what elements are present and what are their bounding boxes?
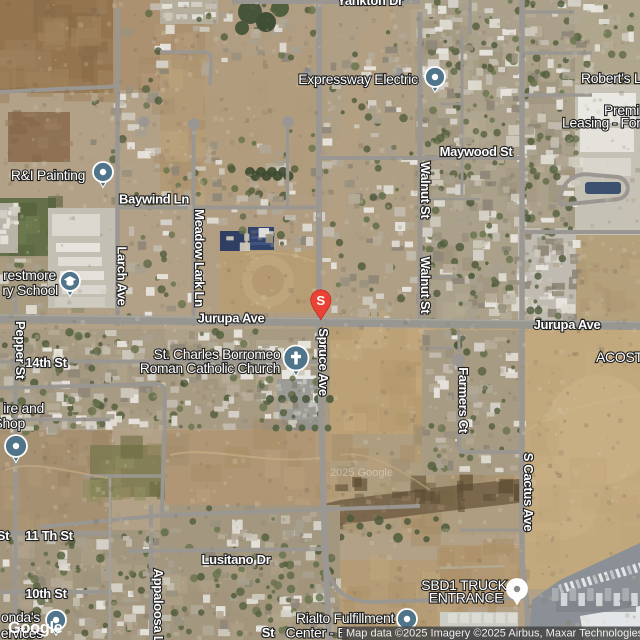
svg-text:Yankton Dr: Yankton Dr (337, 0, 403, 8)
svg-text:Meadow Lark Ln: Meadow Lark Ln (192, 209, 207, 307)
svg-text:Expressway Electric: Expressway Electric (298, 71, 418, 87)
svg-text:Shop: Shop (0, 415, 26, 431)
svg-text:ry School: ry School (2, 282, 58, 298)
svg-text:Robert's L: Robert's L (581, 70, 640, 86)
svg-text:Leasing - For: Leasing - For (562, 115, 640, 131)
svg-text:Map data ©2025 Imagery ©2025 A: Map data ©2025 Imagery ©2025 Airbus, Max… (346, 628, 640, 640)
svg-text:St: St (0, 528, 10, 543)
svg-text:St: St (262, 625, 275, 640)
svg-text:St. Charles Borromeo: St. Charles Borromeo (154, 347, 281, 362)
svg-text:14th St: 14th St (25, 355, 67, 370)
svg-text:11 Th St: 11 Th St (25, 528, 73, 543)
svg-text:Pepper St: Pepper St (13, 321, 28, 380)
svg-text:2025 Google: 2025 Google (330, 467, 393, 479)
svg-text:S Cactus Ave: S Cactus Ave (521, 453, 536, 532)
svg-text:Baywind Ln: Baywind Ln (119, 192, 189, 207)
svg-text:Walnut St: Walnut St (418, 257, 433, 315)
svg-text:ACOSTA: ACOSTA (596, 349, 640, 365)
svg-text:Roman Catholic Church: Roman Catholic Church (140, 361, 280, 376)
svg-text:Lusitano Dr: Lusitano Dr (202, 552, 271, 567)
svg-text:Jurupa Ave: Jurupa Ave (534, 317, 601, 332)
svg-text:restmore: restmore (3, 267, 56, 283)
svg-text:ire and: ire and (3, 400, 44, 416)
svg-text:Center - E: Center - E (286, 625, 347, 640)
svg-text:Appaloosa L: Appaloosa L (151, 569, 166, 640)
svg-text:10th St: 10th St (25, 586, 67, 601)
svg-text:Spruce Ave: Spruce Ave (316, 328, 331, 396)
svg-text:S: S (316, 293, 325, 308)
svg-text:R&I Painting: R&I Painting (11, 167, 85, 183)
svg-text:Larch Ave: Larch Ave (115, 246, 130, 305)
svg-text:Google: Google (8, 619, 63, 637)
svg-text:Farmers Ct: Farmers Ct (456, 367, 471, 434)
svg-text:Jurupa Ave: Jurupa Ave (198, 311, 265, 326)
svg-text:Maywood St: Maywood St (440, 144, 514, 159)
svg-text:ENTRANCE: ENTRANCE (429, 590, 504, 606)
svg-text:Walnut St: Walnut St (418, 162, 433, 220)
